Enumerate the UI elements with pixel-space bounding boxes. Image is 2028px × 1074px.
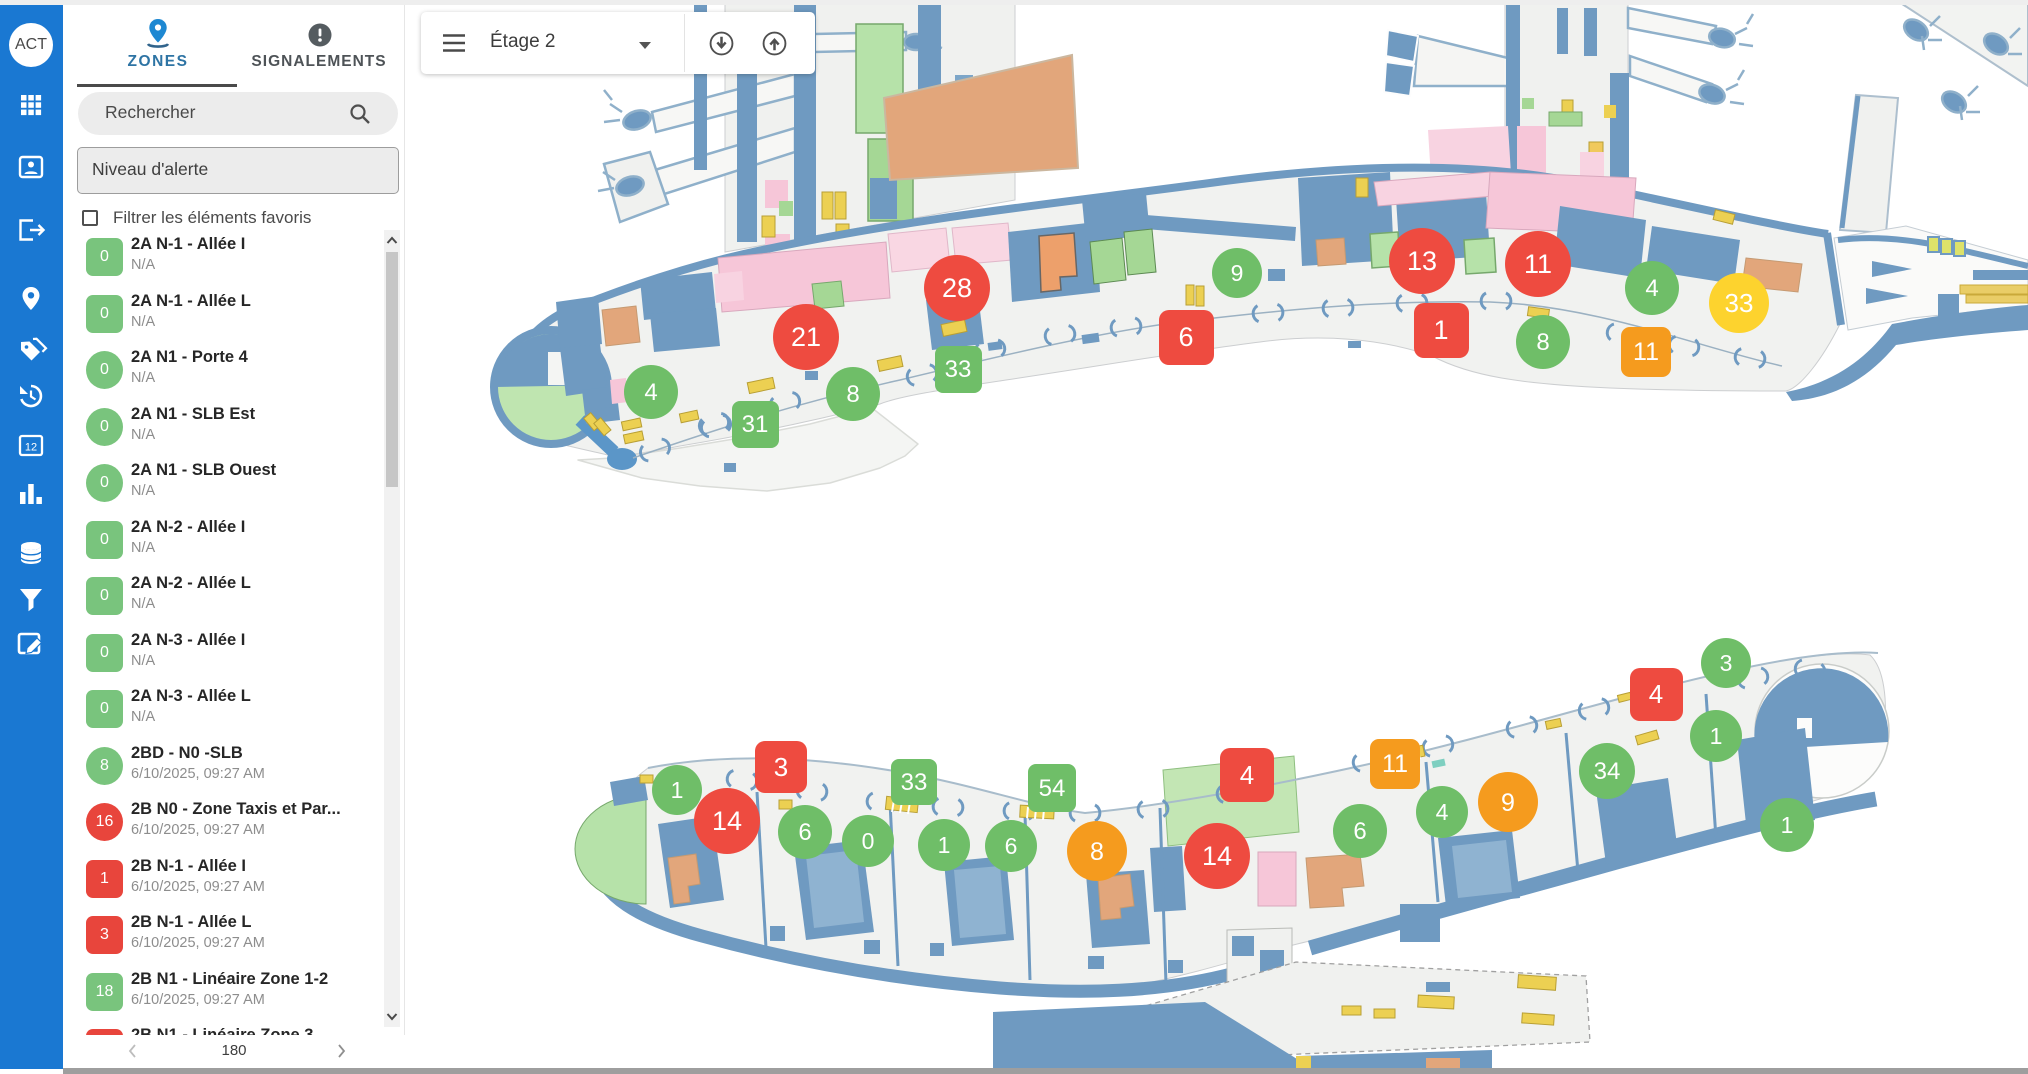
svg-text:8: 8 <box>1090 838 1104 866</box>
svg-text:13: 13 <box>1407 246 1437 276</box>
svg-text:33: 33 <box>945 356 972 383</box>
svg-text:8: 8 <box>1536 329 1549 356</box>
svg-text:4: 4 <box>1645 275 1658 302</box>
svg-text:6: 6 <box>1178 322 1193 352</box>
svg-text:9: 9 <box>1501 789 1515 817</box>
svg-text:12: 12 <box>25 442 37 454</box>
svg-text:6: 6 <box>1353 818 1366 845</box>
svg-text:1: 1 <box>938 832 951 858</box>
svg-text:4: 4 <box>1436 799 1449 825</box>
svg-text:1: 1 <box>1710 723 1723 749</box>
svg-text:6: 6 <box>1005 833 1018 859</box>
svg-text:0: 0 <box>862 828 875 854</box>
svg-text:4: 4 <box>1649 679 1663 709</box>
svg-text:33: 33 <box>901 769 928 796</box>
svg-text:14: 14 <box>1202 841 1232 871</box>
svg-text:21: 21 <box>791 322 821 352</box>
svg-text:1: 1 <box>671 777 684 803</box>
svg-text:11: 11 <box>1633 338 1659 366</box>
svg-text:54: 54 <box>1039 775 1066 802</box>
svg-text:1: 1 <box>1433 315 1448 345</box>
svg-text:14: 14 <box>712 806 742 836</box>
svg-text:3: 3 <box>1720 650 1733 676</box>
svg-text:11: 11 <box>1382 750 1408 778</box>
svg-text:34: 34 <box>1594 758 1621 785</box>
svg-text:6: 6 <box>798 819 811 846</box>
svg-text:28: 28 <box>942 273 972 303</box>
svg-text:4: 4 <box>1240 760 1254 790</box>
svg-text:8: 8 <box>846 381 859 408</box>
svg-text:9: 9 <box>1231 260 1244 286</box>
svg-text:11: 11 <box>1524 249 1552 279</box>
svg-text:4: 4 <box>644 379 657 406</box>
svg-text:3: 3 <box>774 752 788 782</box>
svg-text:31: 31 <box>742 411 769 438</box>
svg-text:1: 1 <box>1781 812 1794 838</box>
svg-text:33: 33 <box>1725 288 1754 318</box>
